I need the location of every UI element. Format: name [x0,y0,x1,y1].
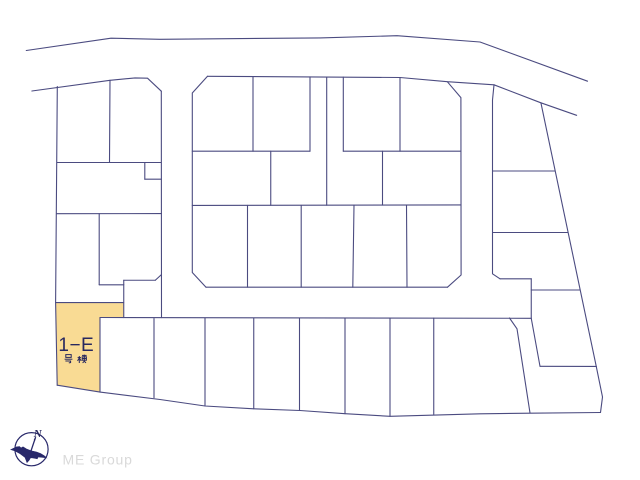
svg-text:ME Group: ME Group [63,452,133,468]
svg-text:N: N [33,428,43,440]
svg-text:1−E: 1−E [58,335,94,356]
